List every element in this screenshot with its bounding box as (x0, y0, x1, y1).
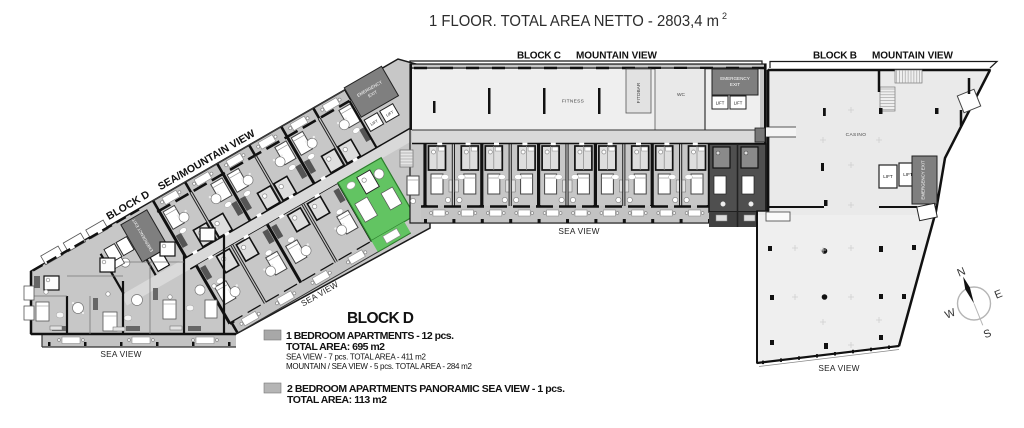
svg-text:BLOCK D: BLOCK D (347, 310, 414, 327)
svg-text:LIFT: LIFT (903, 172, 913, 177)
svg-text:EMERGENCY: EMERGENCY (720, 76, 750, 81)
svg-text:2: 2 (722, 11, 727, 21)
svg-text:EMERGENCY EXIT: EMERGENCY EXIT (921, 160, 926, 200)
svg-text:FITNESS: FITNESS (562, 99, 584, 105)
svg-text:LIFT: LIFT (734, 101, 743, 106)
svg-text:WC: WC (677, 92, 686, 98)
svg-text:MOUNTAIN / SEA VIEW - 5 pcs. T: MOUNTAIN / SEA VIEW - 5 pcs. TOTAL AREA … (286, 362, 473, 371)
svg-text:TOTAL AREA: 695 m2: TOTAL AREA: 695 m2 (286, 341, 385, 353)
svg-text:SEA VIEW - 7 pcs. TOTAL AREA -: SEA VIEW - 7 pcs. TOTAL AREA - 411 m2 (286, 353, 427, 362)
svg-text:SEA VIEW: SEA VIEW (818, 363, 859, 373)
svg-text:BLOCK B: BLOCK B (813, 51, 857, 62)
svg-text:MOUNTAIN VIEW: MOUNTAIN VIEW (872, 51, 954, 62)
svg-text:TOTAL AREA: 113 m2: TOTAL AREA: 113 m2 (287, 394, 387, 406)
svg-text:SEA VIEW: SEA VIEW (558, 226, 599, 236)
svg-text:EXIT: EXIT (730, 82, 740, 87)
svg-text:BLOCK C: BLOCK C (517, 51, 561, 62)
svg-text:LIFT: LIFT (716, 101, 725, 106)
svg-text:LIFT: LIFT (883, 174, 893, 179)
svg-text:MOUNTAIN VIEW: MOUNTAIN VIEW (576, 51, 658, 62)
svg-text:1 FLOOR. TOTAL AREA NETTO - 28: 1 FLOOR. TOTAL AREA NETTO - 2803,4 m (429, 13, 719, 30)
svg-text:CASINO: CASINO (846, 132, 867, 138)
svg-text:FITOBAR: FITOBAR (636, 82, 642, 103)
svg-text:SEA VIEW: SEA VIEW (100, 349, 141, 359)
